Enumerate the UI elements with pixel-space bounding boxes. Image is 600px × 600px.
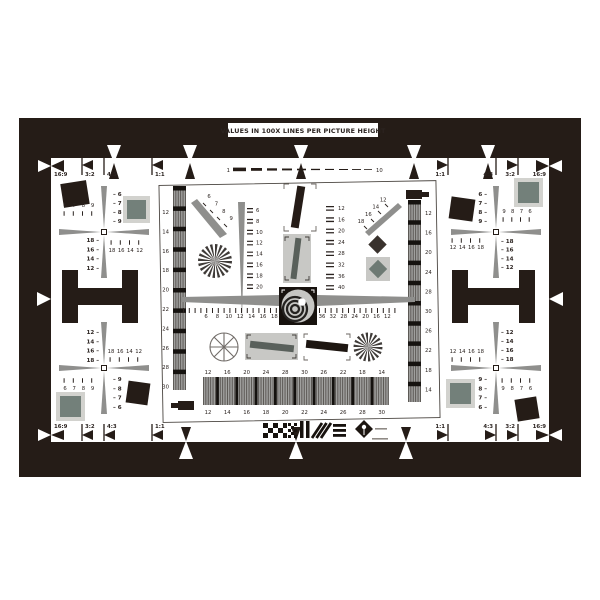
scale-number: – 8 [113,210,122,216]
scale-number: 18 [263,410,270,416]
scale-number: 7 [73,203,76,209]
scale-number: 18 – [86,238,99,244]
scale-number: 24 [263,370,270,376]
scale-number: 28 [340,314,347,320]
gray-patch [450,383,471,404]
scale-number: 36 [319,314,326,320]
scale-number: 24 [351,314,358,320]
scale-number: 7 [73,386,76,392]
scale-number: 28 [425,289,432,295]
scale-number: 16 [338,217,345,223]
scale-number: 14 [248,314,255,320]
scale-number: 12 [384,314,391,320]
scale-number: 18 [359,370,366,376]
scale-number: 7 [520,386,523,392]
scale-number: 9 [502,209,505,215]
scale-number: – 6 [113,192,122,198]
scale-number: 18 [271,314,278,320]
scale-number: – 18 [501,357,514,363]
scale-number: 20 [282,410,289,416]
scale-number: 16 – [86,247,99,253]
scale-number: 12 [450,349,457,355]
scale-number: 28 [359,410,366,416]
scale-number: 16 [365,212,372,218]
iso-12233-test-chart: VALUES IN 100X LINES PER PICTURE HEIGHT … [0,0,600,600]
scale-number: 16 [162,249,169,255]
scale-number: 26 [425,329,432,335]
scale-number: 20 [162,288,169,294]
scale-number: 10 [225,314,232,320]
scale-number: 8 – [478,386,487,392]
scale-number: 30 [301,370,308,376]
scale-number: 30 [378,410,385,416]
dash-scale-start: 1 [227,168,230,174]
tr-bottom-nums: 12141618 [450,245,485,251]
scale-number: 7 – [478,201,487,207]
scale-number: 16 [468,349,475,355]
scale-number: 12 [136,248,143,254]
scale-number: 20 [243,370,250,376]
scale-number: 9 [91,203,94,209]
scale-number: 24 [425,270,432,276]
scale-number: 16 [243,410,250,416]
left-bar-key-flag [178,401,194,410]
tilted-square [126,381,151,406]
scale-number: 16 [260,314,267,320]
scale-number: 14 [256,252,263,258]
scale-number: 24 [320,410,327,416]
horizontal-stripes-pattern [333,424,346,437]
br-top-nums: 12141618 [450,349,485,355]
aspect-label: 4:3 [107,172,117,178]
scale-number: 18 [256,273,263,279]
scale-number: 12 [425,211,432,217]
scale-number: 40 [338,285,345,291]
scale-number: 7 – [478,396,487,402]
scale-number: – 14 [501,339,514,345]
scale-number: 26 [162,346,169,352]
scale-number: – 7 [113,201,122,207]
scale-number: – 12 [501,330,514,336]
zone-plate [279,287,317,325]
scale-number: 22 [425,348,432,354]
scale-number: 10 [256,230,263,236]
scale-number: 36 [338,274,345,280]
scale-number: – 6 [113,405,122,411]
scale-number: 12 [237,314,244,320]
scale-number: – 9 [113,219,122,225]
scale-number: 12 [256,241,263,247]
scale-number: 16 [224,370,231,376]
scale-number: 32 [330,314,337,320]
scale-number: 22 [162,307,169,313]
aspect-label: 16:9 [533,172,547,178]
aspect-label: 4:3 [483,424,493,430]
scale-number: 28 [338,251,345,257]
scale-number: 14 [372,205,379,211]
aspect-label: 1:1 [155,172,165,178]
bottom-grating-bar [203,377,389,405]
scale-number: 9 [501,386,504,392]
scale-number: 16 [468,245,475,251]
scale-number: 30 [425,309,432,315]
scale-number: 16 [373,314,380,320]
scale-number: 18 [358,219,365,225]
scale-number: 18 [477,349,484,355]
gray-patch [518,182,539,203]
scale-number: 24 [338,240,345,246]
scale-number: 18 [162,268,169,274]
scale-number: – 12 [501,265,514,271]
tilted-square [514,396,539,421]
scale-number: 22 [340,370,347,376]
scale-number: 12 [162,210,169,216]
scale-number: 26 [340,410,347,416]
aspect-label: 1:1 [155,424,165,430]
scale-number: 6 – [478,405,487,411]
scale-number: – 16 [501,248,514,254]
scale-number: – 18 [501,239,514,245]
scale-number: 16 – [86,349,99,355]
scale-number: 12 – [86,330,99,336]
scale-number: 7 [215,201,218,207]
scale-number: 28 [282,370,289,376]
scale-number: 16 [425,231,432,237]
scale-number: – 9 [113,377,122,383]
scale-number: 18 [477,245,484,251]
scale-number: 20 [362,314,369,320]
aspect-label: 1:1 [435,172,445,178]
scale-number: 30 [162,385,169,391]
scale-number: 14 [224,410,231,416]
aspect-label: 16:9 [54,424,68,430]
aspect-label: 4:3 [107,424,117,430]
banner-title: VALUES IN 100X LINES PER PICTURE HEIGHT [220,127,386,135]
dash-scale-end: 10 [376,168,383,174]
scale-number: 9 [230,216,233,222]
right-bar-key-flag [406,190,422,199]
scale-number: 18 [109,248,116,254]
scale-number: – 8 [113,386,122,392]
scale-number: – 16 [501,348,514,354]
gray-patch [127,200,146,219]
scale-number: 28 [162,365,169,371]
scale-number: 9 [91,386,94,392]
scale-number: 12 – [86,266,99,272]
scale-number: 14 [459,245,466,251]
scale-number: 26 [320,370,327,376]
scale-number: 14 [127,248,134,254]
scale-number: 9 – [478,377,487,383]
aspect-label: 1:1 [435,424,445,430]
scale-number: 6 – [478,192,487,198]
scale-number: 8 – [478,210,487,216]
scale-number: 22 [301,410,308,416]
scale-number: 32 [338,263,345,269]
scale-number: 16 [117,349,124,355]
aspect-label: 3:2 [505,172,515,178]
aspect-label: 3:2 [85,424,95,430]
scale-number: 12 [338,206,345,212]
gray-patch [60,396,81,417]
scale-number: 14 [378,370,385,376]
scale-number: 18 [425,368,432,374]
spoke-wheel [210,333,238,361]
scale-number: 7 [520,209,523,215]
scale-number: 12 [205,410,212,416]
aspect-label: 3:2 [505,424,515,430]
scale-number: 9 – [478,219,487,225]
scale-number: 14 [162,229,169,235]
scale-number: 14 [126,349,133,355]
scale-number: 14 – [86,257,99,263]
aspect-label: 16:9 [54,172,68,178]
scale-number: 16 [118,248,125,254]
scale-number: 12 [135,349,142,355]
scale-number: 18 [108,349,115,355]
aspect-label: 4:3 [483,172,493,178]
scale-number: 24 [162,326,169,332]
scale-number: 12 [380,197,387,203]
scale-number: 18 – [86,358,99,364]
tilted-square [449,196,476,221]
aspect-label: 3:2 [85,172,95,178]
aspect-label: 16:9 [533,424,547,430]
scale-number: 20 [338,229,345,235]
scale-number: 20 [425,250,432,256]
scale-number: 14 [425,387,432,393]
scale-number: – 7 [113,396,122,402]
scale-number: 14 – [86,339,99,345]
scale-number: 20 [256,284,263,290]
scale-number: – 14 [501,256,514,262]
scale-number: 12 [205,370,212,376]
scale-number: 12 [450,245,457,251]
scale-number: 16 [256,263,263,269]
scale-number: 14 [459,349,466,355]
